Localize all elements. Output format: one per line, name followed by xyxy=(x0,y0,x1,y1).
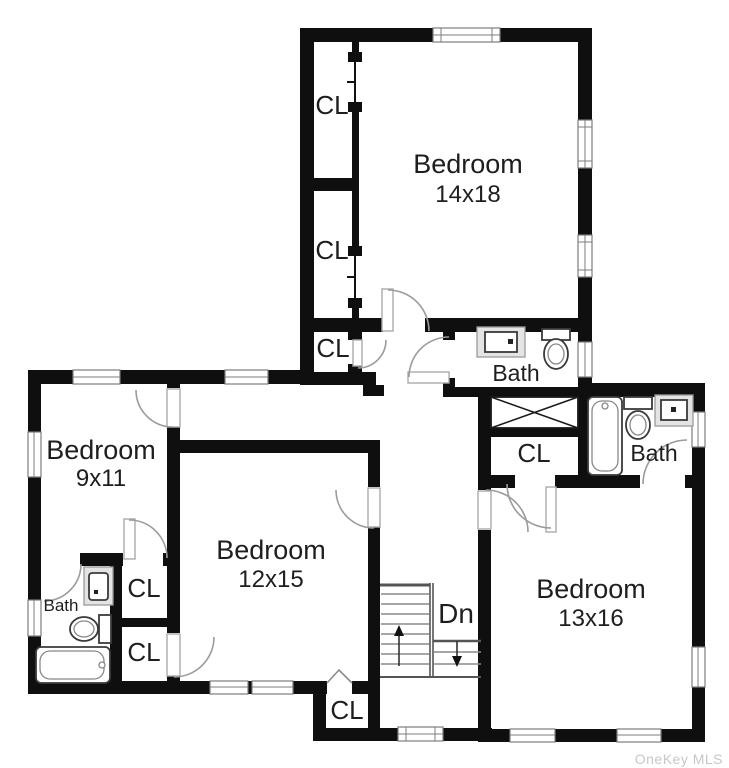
door-swing xyxy=(167,634,214,677)
wall-segment xyxy=(28,370,73,384)
bedroom-top-name: Bedroom xyxy=(413,149,523,179)
closet-label: CL xyxy=(517,438,550,468)
door-swing xyxy=(382,289,429,331)
bath-right-label: Bath xyxy=(630,440,677,466)
door-swing xyxy=(408,337,449,383)
wall-segment xyxy=(685,475,705,488)
toilet-icon xyxy=(70,615,111,643)
wall-segment xyxy=(443,387,578,397)
window xyxy=(578,235,592,277)
wall-segment xyxy=(167,681,210,694)
door-swing xyxy=(336,488,380,528)
bath-top-label: Bath xyxy=(492,360,539,386)
door-swing xyxy=(478,490,528,532)
bath-left-label: Bath xyxy=(44,596,79,615)
wall-segment xyxy=(478,428,578,437)
bedroom-right-name: Bedroom xyxy=(536,574,646,604)
door-swing xyxy=(136,389,180,427)
wall-segment xyxy=(167,370,180,388)
window xyxy=(28,600,41,636)
walls xyxy=(28,28,705,742)
window xyxy=(210,681,248,694)
bifold-door-mark xyxy=(327,670,352,683)
window xyxy=(433,28,500,42)
closet-label: CL xyxy=(127,573,160,603)
wall-segment xyxy=(578,168,592,235)
wall-segment xyxy=(368,440,380,487)
window xyxy=(510,729,555,742)
bathtub-icon xyxy=(36,647,110,683)
wall-segment xyxy=(661,729,705,742)
stairs-up-arrow xyxy=(394,625,404,666)
door-swing xyxy=(353,340,386,368)
wall-segment xyxy=(363,385,384,396)
wall-segment xyxy=(313,318,383,332)
wall-segment xyxy=(578,475,640,488)
wall-segment xyxy=(352,681,368,694)
window xyxy=(225,370,268,384)
wall-segment xyxy=(555,729,617,742)
wall-segment xyxy=(300,28,314,384)
wall-segment xyxy=(368,527,380,741)
closet-label: CL xyxy=(315,235,348,265)
closet-label: CL xyxy=(315,90,348,120)
wall-segment xyxy=(578,28,592,120)
window xyxy=(73,370,120,384)
window xyxy=(252,681,293,694)
wall-segment xyxy=(110,618,167,627)
closet-label: CL xyxy=(330,695,363,725)
sink-vanity-icon xyxy=(655,395,693,426)
wall-segment xyxy=(491,475,515,488)
wall-segment xyxy=(352,191,359,248)
door-swing xyxy=(507,484,556,532)
wall-segment xyxy=(313,728,398,741)
bedroom-mid-name: Bedroom xyxy=(216,535,326,565)
door-hinge-block xyxy=(348,298,362,308)
wall-segment xyxy=(80,553,123,566)
window xyxy=(578,120,592,168)
bedroom-mid-dims: 12x15 xyxy=(238,566,303,593)
watermark: OneKey MLS xyxy=(635,751,723,767)
wall-segment xyxy=(443,728,492,741)
sink-vanity-icon xyxy=(84,567,113,605)
wall-segment xyxy=(163,553,180,566)
wall-segment xyxy=(167,440,368,453)
door-hinge-block xyxy=(348,102,362,112)
wall-segment xyxy=(555,475,578,488)
toilet-icon xyxy=(542,329,570,369)
wall-segment xyxy=(352,112,359,178)
closet-label: CL xyxy=(127,637,160,667)
bedroom-left-dims: 9x11 xyxy=(76,465,126,492)
wall-segment xyxy=(313,178,359,191)
hatched-box xyxy=(491,397,578,428)
wall-segment xyxy=(28,553,40,566)
closet-label: CL xyxy=(316,333,349,363)
window xyxy=(692,647,705,687)
toilet-icon xyxy=(624,397,652,439)
floor-plan-canvas: Bedroom 14x18 CL CL CL Bath CL Bath Bedr… xyxy=(0,0,729,768)
sink-vanity-icon xyxy=(477,327,525,357)
door-hinge-block xyxy=(348,332,362,340)
window xyxy=(617,729,661,742)
wall-segment xyxy=(28,384,41,432)
door-hinge-block xyxy=(348,52,362,62)
bedroom-top-dims: 14x18 xyxy=(435,181,500,208)
bedroom-right-dims: 13x16 xyxy=(558,605,623,632)
window xyxy=(578,342,592,377)
stairs-down-label: Dn xyxy=(438,598,474,629)
door-swing xyxy=(124,519,167,559)
window xyxy=(692,412,705,447)
wall-segment xyxy=(268,370,300,384)
wall-segment xyxy=(28,477,41,600)
window xyxy=(398,727,443,741)
wall-segment xyxy=(692,383,705,412)
wall-segment xyxy=(167,427,180,633)
wall-segment xyxy=(248,681,252,694)
door-hinge-block xyxy=(348,246,362,256)
bathtub-icon xyxy=(588,397,622,475)
wall-segment xyxy=(578,277,592,342)
wall-segment xyxy=(352,308,359,318)
wall-segment xyxy=(478,530,491,742)
bedroom-left-name: Bedroom xyxy=(46,435,156,465)
wall-segment xyxy=(300,28,433,42)
wall-segment xyxy=(478,392,491,490)
window xyxy=(28,432,41,477)
stairs-down-arrow xyxy=(452,641,462,667)
floor-plan-page: Bedroom 14x18 CL CL CL Bath CL Bath Bedr… xyxy=(0,0,729,768)
